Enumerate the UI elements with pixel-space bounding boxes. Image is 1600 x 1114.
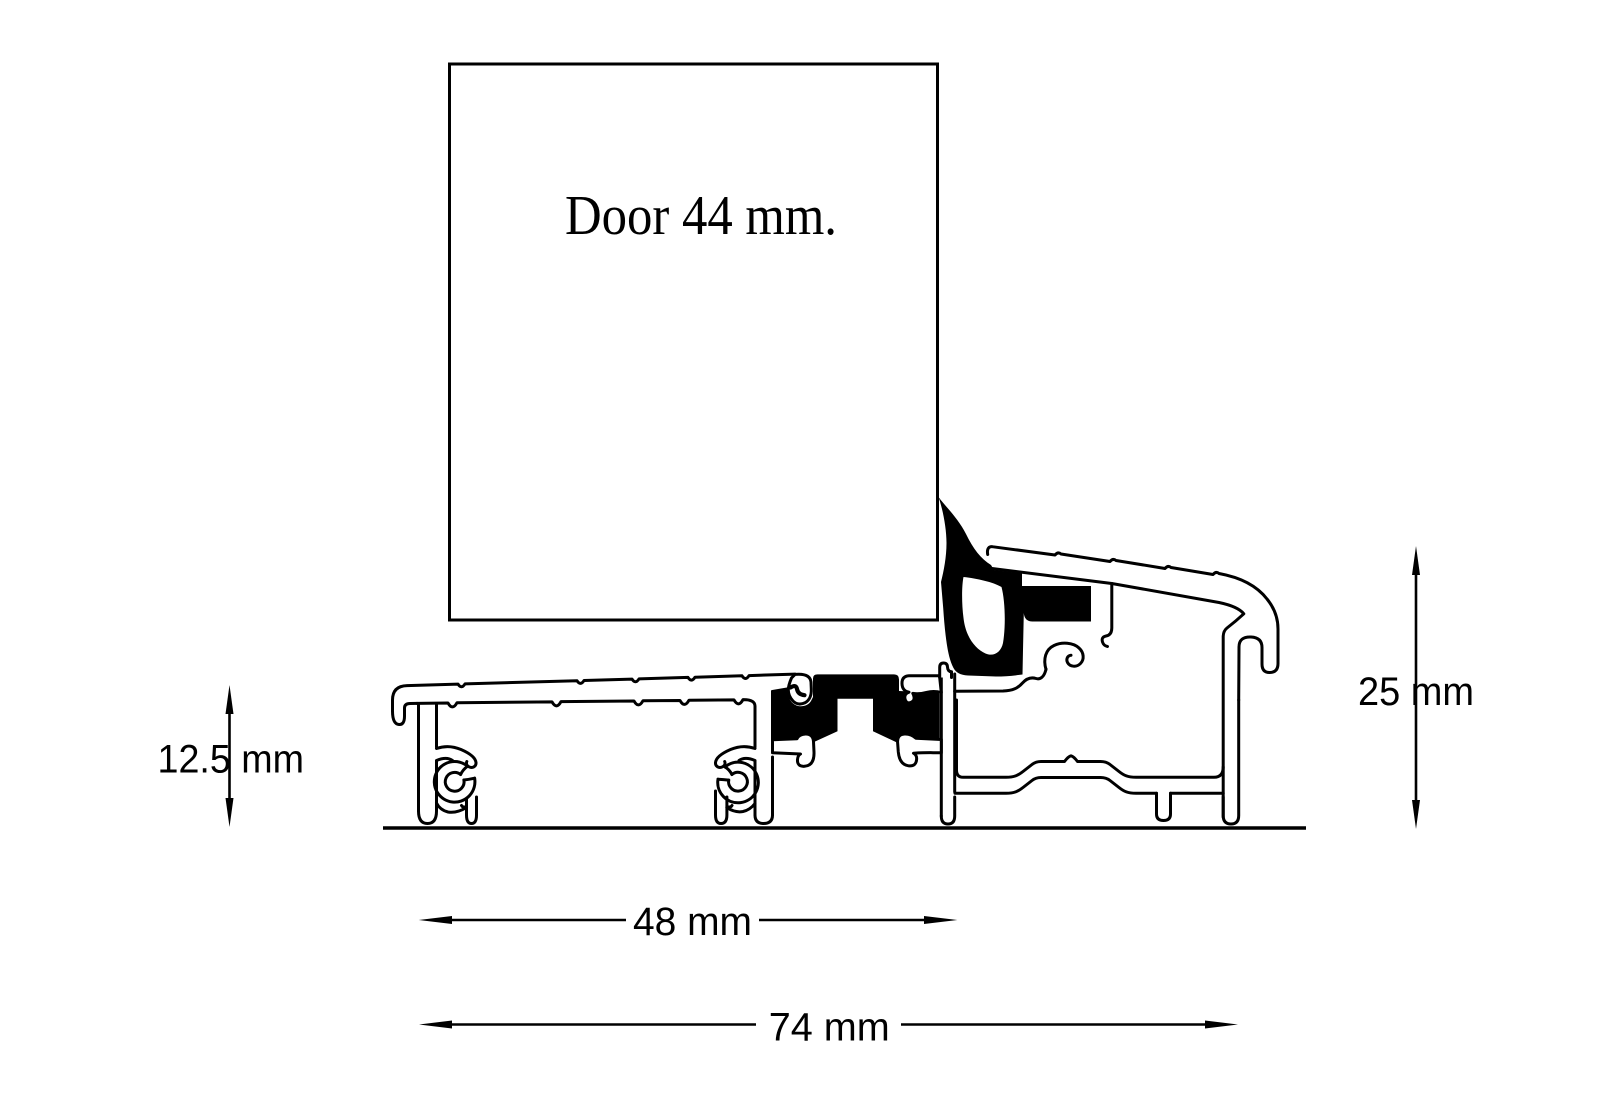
- svg-text:48 mm: 48 mm: [633, 900, 752, 944]
- svg-text:74 mm: 74 mm: [769, 1006, 890, 1050]
- svg-text:25 mm: 25 mm: [1358, 670, 1474, 714]
- svg-text:12.5 mm: 12.5 mm: [158, 738, 305, 782]
- svg-text:Door 44 mm.: Door 44 mm.: [565, 185, 837, 247]
